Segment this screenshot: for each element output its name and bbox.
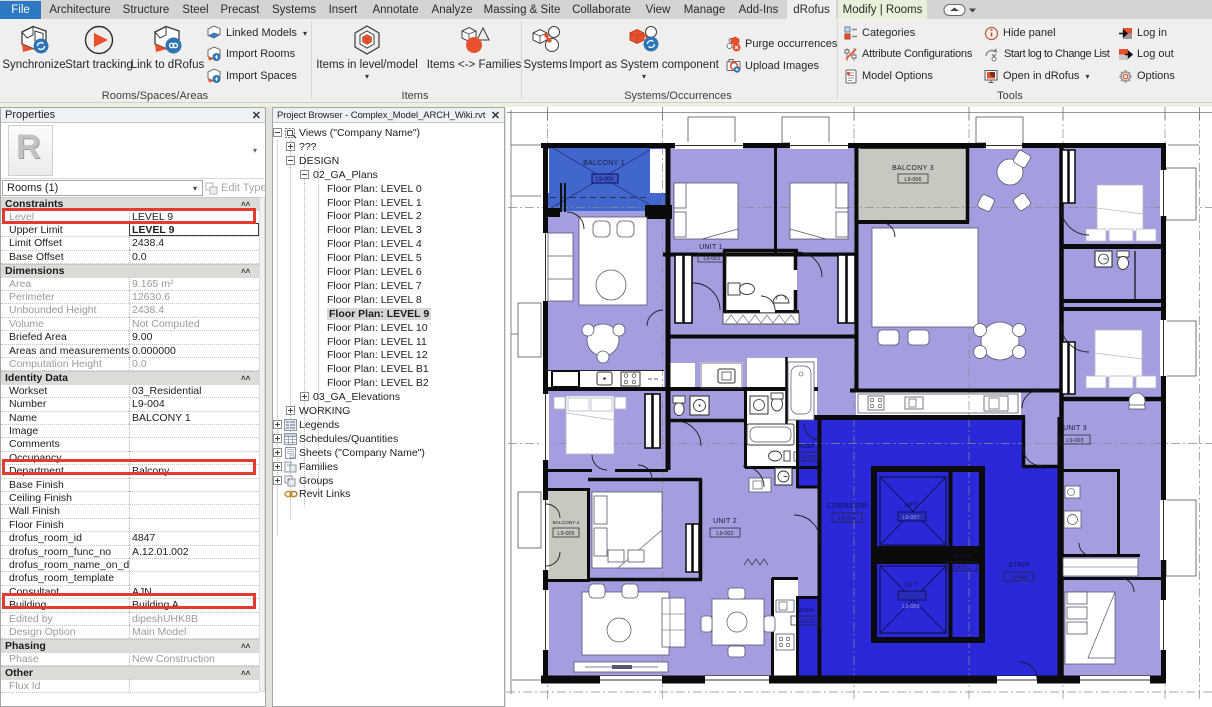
svg-text:L9-009: L9-009 (902, 604, 919, 610)
svg-text:L9-002: L9-002 (716, 531, 733, 537)
svg-text:UNIT 2: UNIT 2 (713, 518, 737, 525)
svg-text:UNIT 1: UNIT 1 (699, 244, 723, 251)
svg-text:LIFT: LIFT (904, 502, 917, 509)
svg-text:L9-005: L9-005 (557, 531, 574, 537)
svg-text:L9-010: L9-010 (798, 455, 815, 461)
svg-text:UNIT 3: UNIT 3 (1063, 425, 1087, 432)
svg-text:STAIR: STAIR (1008, 562, 1030, 569)
svg-text:L9-012: L9-012 (797, 619, 814, 625)
svg-text:L9-008: L9-008 (1010, 575, 1027, 581)
svg-text:L9-001: L9-001 (703, 256, 720, 262)
svg-text:RISER: RISER (799, 444, 815, 450)
svg-text:RISER: RISER (954, 554, 971, 560)
svg-text:BALCONY 2: BALCONY 2 (553, 520, 580, 526)
svg-text:BALCONY 3: BALCONY 3 (892, 165, 934, 172)
svg-text:L9-004: L9-004 (596, 177, 613, 183)
svg-text:BALCONY 1: BALCONY 1 (583, 160, 625, 167)
svg-text:L9-007: L9-007 (902, 515, 919, 521)
svg-text:RISER: RISER (798, 608, 814, 614)
svg-text:L9-006: L9-006 (904, 177, 921, 183)
svg-text:LIFT: LIFT (904, 582, 917, 589)
svg-text:L9-014: L9-014 (838, 516, 855, 522)
svg-text:CORRIDOR: CORRIDOR (827, 503, 868, 510)
svg-text:L9-003: L9-003 (1066, 438, 1083, 444)
svg-text:L9-011: L9-011 (954, 565, 971, 571)
